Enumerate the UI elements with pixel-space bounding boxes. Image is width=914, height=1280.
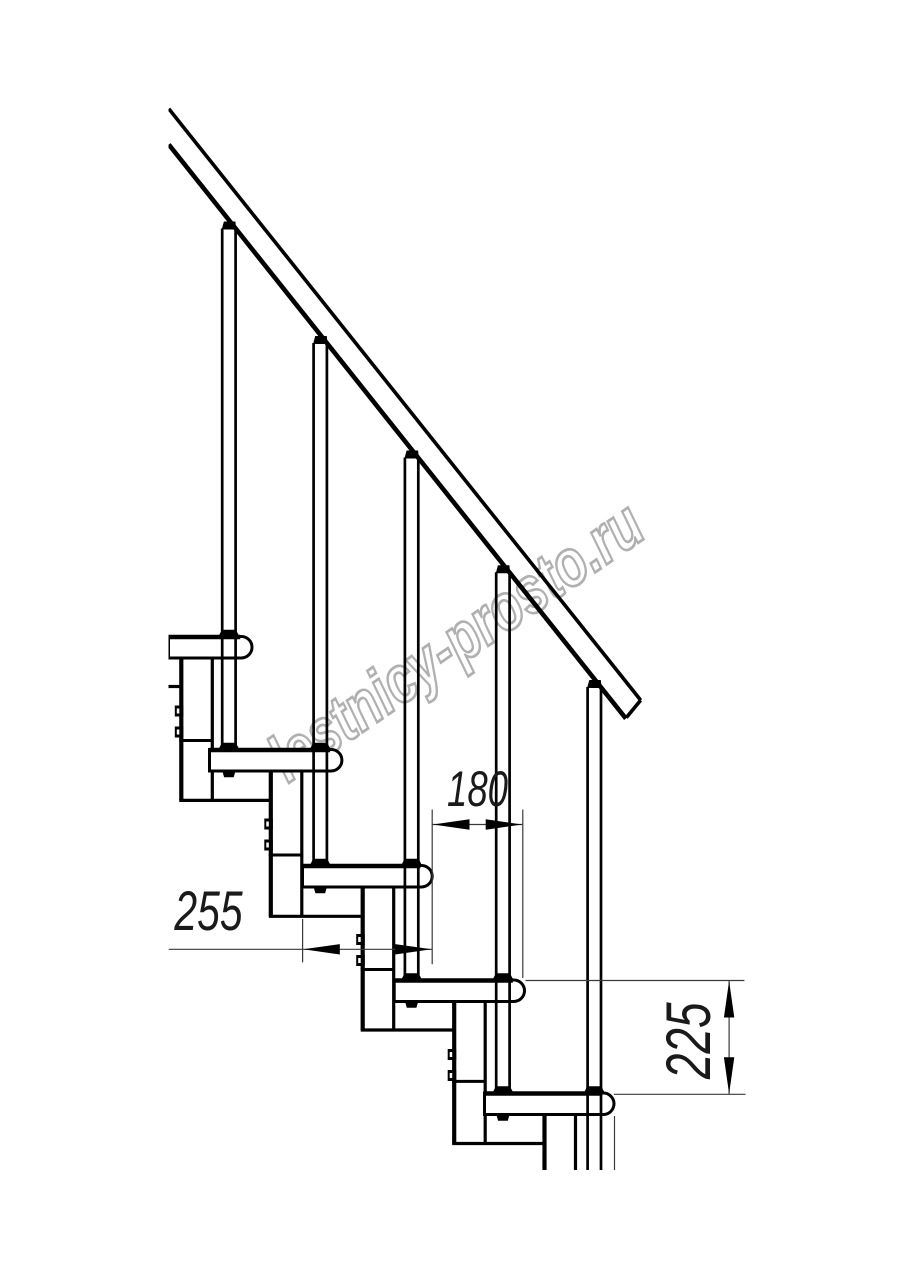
svg-text:255: 255 bbox=[174, 881, 244, 943]
svg-text:180: 180 bbox=[447, 761, 508, 817]
svg-text:225: 225 bbox=[653, 1002, 724, 1080]
